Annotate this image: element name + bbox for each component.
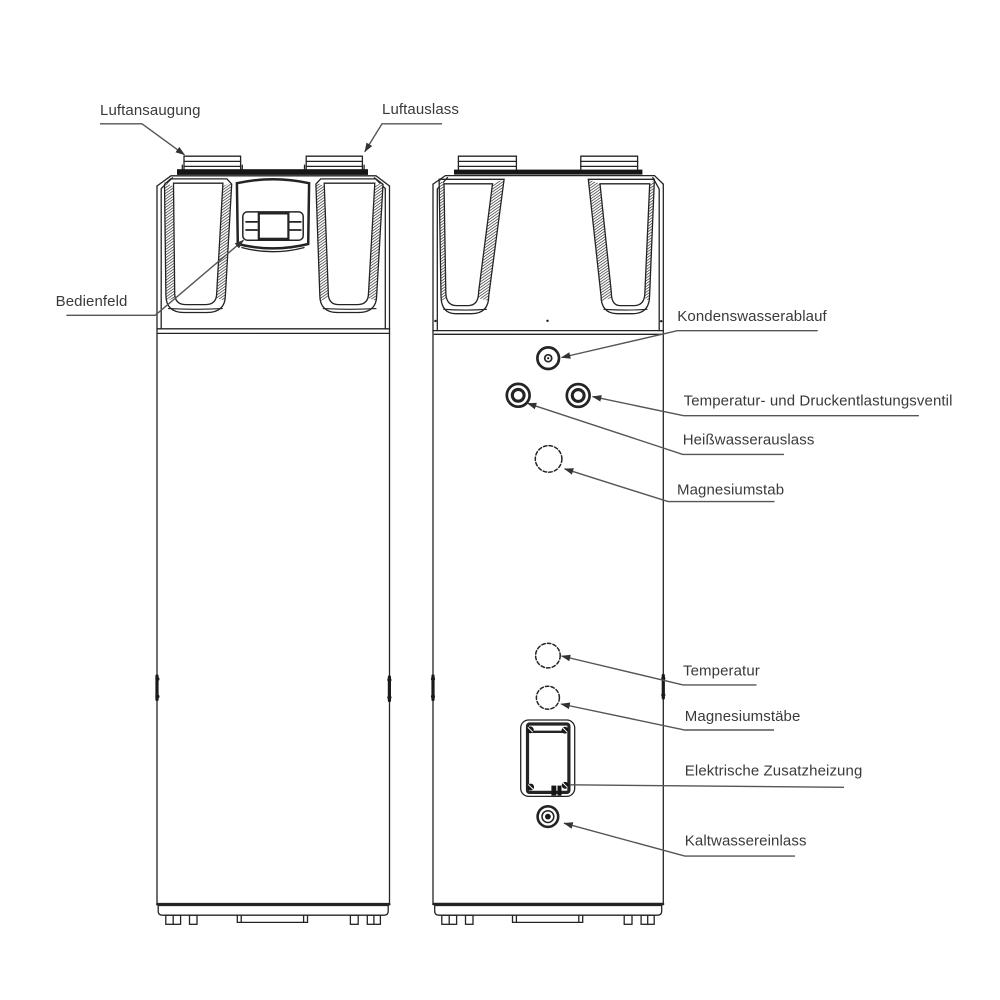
svg-text:Kaltwassereinlass: Kaltwassereinlass	[685, 832, 807, 849]
svg-text:Temperatur- und Druckentlastun: Temperatur- und Druckentlastungsventil	[684, 393, 953, 410]
svg-text:Luftansaugung: Luftansaugung	[100, 102, 201, 119]
svg-text:Bedienfeld: Bedienfeld	[56, 293, 128, 310]
svg-text:Luftauslass: Luftauslass	[382, 101, 459, 118]
svg-text:Magnesiumstab: Magnesiumstab	[677, 482, 784, 499]
svg-text:Magnesiumstäbe: Magnesiumstäbe	[685, 708, 801, 725]
svg-text:Kondenswasserablauf: Kondenswasserablauf	[677, 308, 827, 325]
svg-text:Heißwasserauslass: Heißwasserauslass	[683, 432, 815, 449]
svg-text:Temperatur: Temperatur	[683, 663, 760, 680]
svg-text:Elektrische Zusatzheizung: Elektrische Zusatzheizung	[685, 762, 863, 779]
